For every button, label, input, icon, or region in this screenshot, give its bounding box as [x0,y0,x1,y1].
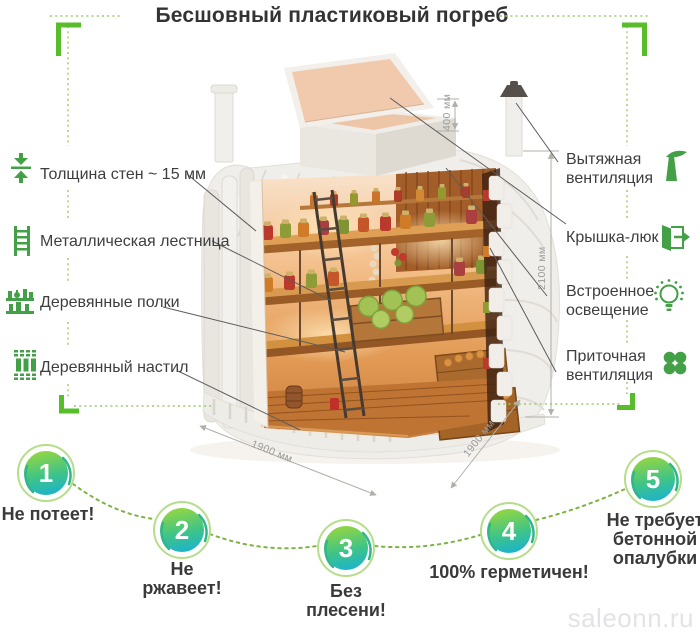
corner-bracket-bottom-right [617,393,633,408]
barrel [286,386,302,408]
corner-bracket-top-right [622,25,645,56]
vent-pipe-right [500,81,528,156]
benefit-label-5: Не требует бетонной опалубки [605,511,700,568]
feature-shelves-label: Деревянные полки [40,294,180,313]
feature-ladder-label: Металлическая лестница [40,233,230,252]
hatch-icon [658,222,691,257]
benefit-badge-2: 2 [153,501,211,559]
feature-exhaust-vent-label: Вытяжная вентиляция [566,151,666,188]
feature-decking-label: Деревянный настил [40,359,188,378]
benefit-label-3: Без плесени! [290,582,402,620]
corner-bracket-top-left [59,25,82,56]
benefit-badge-5: 5 [624,450,682,508]
supply-vent-icon [662,350,688,381]
corner-bracket-bottom-left [62,395,80,411]
dimension-body-height: 2100 мм [536,246,548,290]
feature-hatch-label: Крышка-люк [566,229,666,248]
benefit-label-2: Не ржавеет! [130,560,234,598]
infographic-canvas: Бесшовный пластиковый погреб Толщина сте… [0,0,700,640]
red-jar [330,398,339,410]
feature-light-label: Встроенное освещение [566,283,666,320]
light-icon [654,279,684,320]
wall-thickness-icon [10,153,32,188]
exhaust-vent-icon [656,149,688,188]
benefit-label-1: Не потеет! [0,505,96,524]
feature-wall-thickness-label: Толщина стен ~ 15 мм [40,166,206,185]
shelves-icon [6,287,34,320]
benefit-badge-1: 1 [17,444,75,502]
decking-icon [14,350,38,385]
benefit-badge-4: 4 [480,502,538,560]
ladder-icon [12,226,32,261]
feature-supply-vent-label: Приточная вентиляция [566,348,666,385]
benefit-badge-3: 3 [317,519,375,577]
dimension-hatch-height: 400 мм [441,94,453,131]
benefit-label-4: 100% герметичен! [427,563,591,582]
cellar-interior [256,168,520,440]
left-wall-ribs [204,168,254,430]
watermark: saleonn.ru [568,603,694,634]
vent-pipe-left [211,85,237,162]
